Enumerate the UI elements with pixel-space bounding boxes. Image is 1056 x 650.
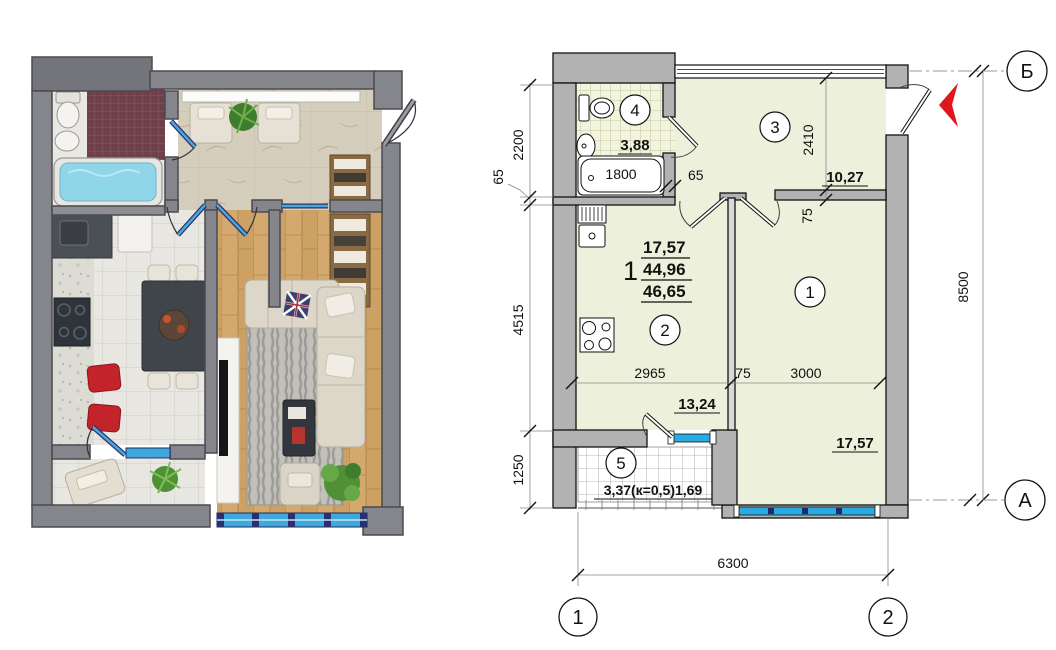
- dim-bath-1800: 1800: [605, 166, 636, 182]
- dim-mid-75: 75: [735, 365, 751, 381]
- room5-number: 5: [616, 454, 625, 473]
- room4-number: 4: [630, 101, 639, 120]
- technical-plan-svg: Б А 1 2 1 2 3 4 5 3,88 10,27: [490, 0, 1056, 650]
- sofa-pillow-2: [325, 353, 356, 379]
- dim-left-65: 65: [490, 169, 506, 185]
- stamp-apartment-area: 44,96: [643, 260, 686, 279]
- room1-window: [734, 505, 880, 517]
- bathroom-mosaic-floor: [87, 88, 165, 160]
- entrance-arrow-icon: [939, 83, 958, 127]
- room3-top-wall: [675, 65, 886, 78]
- room1-area: 17,57: [836, 435, 874, 452]
- stamp-total-area: 46,65: [643, 282, 686, 301]
- axis-label-B: Б: [1020, 61, 1033, 83]
- axis-label-2: 2: [882, 607, 893, 629]
- room3-number: 3: [770, 118, 779, 137]
- dim-bath-65: 65: [688, 167, 704, 183]
- dim-hall-2410: 2410: [800, 124, 816, 155]
- room5-area: 3,37(к=0,5)1,69: [604, 482, 703, 498]
- fridge-icon: [118, 210, 152, 252]
- entrance-door-tech: [899, 83, 958, 133]
- dim-left-1250: 1250: [510, 454, 526, 485]
- tv-console: [217, 338, 239, 503]
- balcony-area: [578, 447, 722, 510]
- bathroom-sink-icon: [55, 131, 79, 151]
- balcony-window: [668, 431, 716, 444]
- coffee-table: [283, 400, 315, 456]
- hall-shelf: [182, 91, 360, 102]
- axis-label-1: 1: [572, 607, 583, 629]
- floorplan-page: Б А 1 2 1 2 3 4 5 3,88 10,27: [0, 0, 1056, 650]
- room1-number: 1: [805, 283, 814, 302]
- room2-area: 13,24: [678, 396, 716, 413]
- stove-tech: [580, 318, 614, 352]
- room4-area: 3,88: [620, 137, 649, 154]
- room2-number: 2: [660, 321, 669, 340]
- dim-bottom-6300: 6300: [717, 555, 748, 571]
- living-armchair: [280, 463, 320, 505]
- hall-armchair-2: [258, 103, 300, 143]
- union-jack-pillow: [283, 291, 311, 319]
- render-plan-svg: [30, 55, 435, 540]
- axis-label-A: А: [1018, 490, 1032, 512]
- stamp-rooms-count: 1: [623, 256, 638, 286]
- dim-left-4515: 4515: [510, 304, 526, 335]
- toilet-icon: [56, 92, 80, 128]
- hall-armchair-1: [190, 103, 232, 143]
- dim-hall-75: 75: [799, 208, 815, 224]
- dim-room1-3000: 3000: [790, 365, 821, 381]
- render-plan: [30, 55, 435, 540]
- dim-right-8500: 8500: [955, 271, 971, 302]
- dim-left-2200: 2200: [510, 129, 526, 160]
- kitchen-sink-counter: [52, 210, 112, 258]
- bathtub-icon: [54, 158, 162, 206]
- stamp-living-area: 17,57: [643, 238, 686, 257]
- dim-kitchen-2965: 2965: [634, 365, 665, 381]
- room3-area: 10,27: [826, 169, 864, 186]
- dining-table: [142, 265, 206, 389]
- stove-icon: [54, 298, 90, 346]
